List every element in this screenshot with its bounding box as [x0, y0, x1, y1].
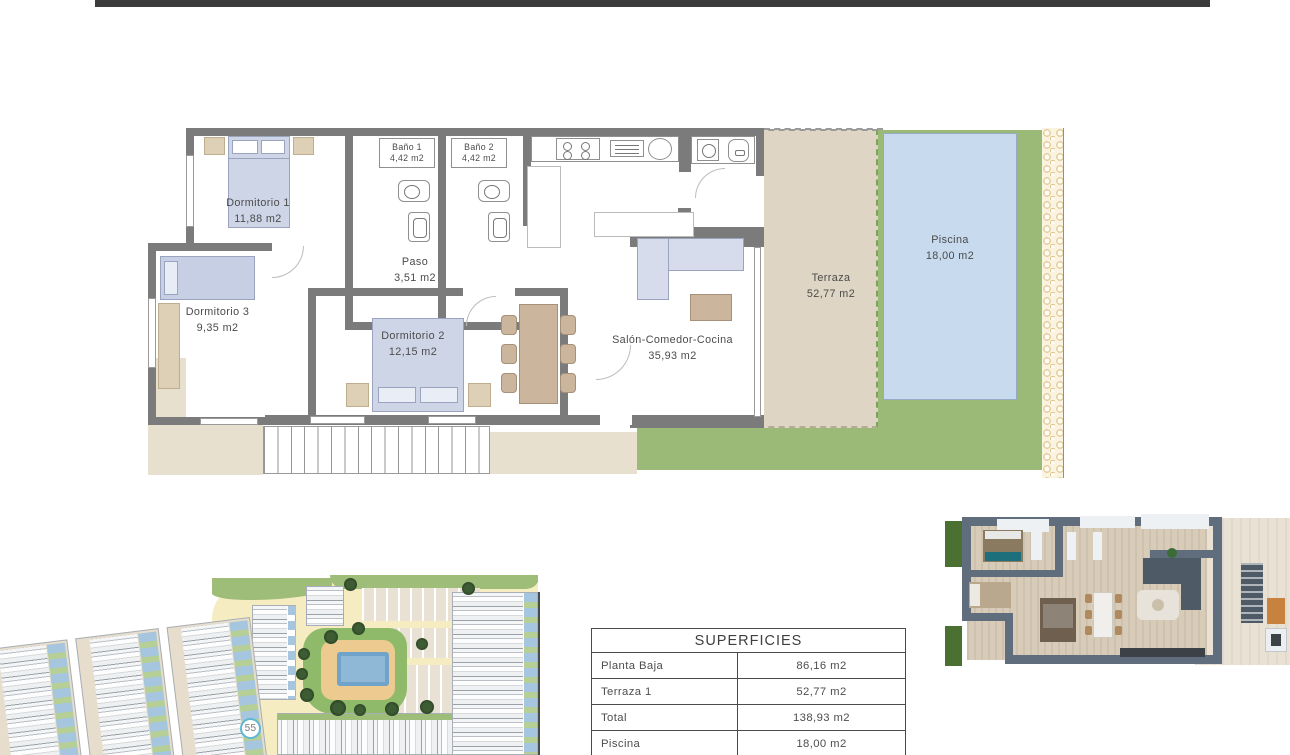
wall [630, 415, 764, 428]
floorplan: Dormitorio 1 11,88 m2 Baño 1 4,42 m2 Bañ… [0, 0, 1290, 500]
room-label-dormitorio1: Dormitorio 1 11,88 m2 [193, 196, 323, 227]
room-name: Baño 2 [464, 142, 494, 153]
tree-icon [420, 700, 434, 714]
wall [345, 128, 353, 226]
room-area: 11,88 m2 [234, 212, 281, 227]
wall [679, 128, 691, 172]
tree-icon [300, 688, 314, 702]
washer-icon [697, 139, 719, 161]
wall [345, 226, 353, 322]
washbasin-icon [408, 212, 430, 242]
wall [438, 128, 446, 226]
superficies-title: SUPERFICIES [592, 629, 905, 653]
nightstand [293, 137, 314, 155]
render-grass [945, 626, 962, 666]
room-label-dormitorio2: Dormitorio 2 12,15 m2 [348, 329, 478, 360]
row-value: 52,77 m2 [738, 679, 905, 704]
room-area: 9,35 m2 [197, 321, 239, 336]
room-label-bano2: Baño 2 4,42 m2 [451, 138, 507, 168]
boiler-icon [728, 139, 749, 162]
island-counter [594, 212, 694, 237]
render-dining-table [1093, 592, 1113, 638]
dining-chair [560, 315, 576, 335]
tree-icon [324, 630, 338, 644]
table-row: Total 138,93 m2 [592, 705, 905, 731]
siteplan-pool [337, 652, 389, 686]
room-area: 4,42 m2 [462, 153, 496, 164]
siteplan-building-row [452, 592, 538, 755]
sofa [637, 238, 669, 300]
tree-icon [354, 704, 366, 716]
pool [883, 133, 1017, 400]
room-name: Dormitorio 3 [186, 305, 250, 320]
kitchen-column [527, 166, 561, 248]
dining-chair [501, 315, 517, 335]
room-label-dormitorio3: Dormitorio 3 9,35 m2 [155, 305, 280, 336]
pebble-border [1042, 128, 1064, 478]
unit-55-marker: 55 [240, 718, 261, 739]
wall [308, 288, 463, 296]
room-name: Dormitorio 1 [226, 196, 290, 211]
render-kitchen-counter [1120, 648, 1205, 657]
section-divider [538, 592, 540, 755]
render-rug [1137, 590, 1179, 620]
room-label-salon: Salón-Comedor-Cocina 35,93 m2 [585, 333, 760, 364]
sink-icon [648, 138, 672, 160]
window [200, 418, 258, 425]
hob-icon [556, 138, 600, 160]
wall [308, 288, 316, 418]
worktop-icon [610, 140, 644, 157]
tree-icon [385, 702, 399, 716]
room-name: Piscina [931, 233, 969, 248]
render-plant [1167, 548, 1177, 558]
render-grass [945, 521, 962, 567]
room-area: 35,93 m2 [648, 349, 696, 364]
nightstand [204, 137, 225, 155]
plan-sheet: Dormitorio 1 11,88 m2 Baño 1 4,42 m2 Bañ… [0, 0, 1290, 755]
render-bed-3 [969, 582, 1011, 608]
dining-chair [501, 344, 517, 364]
dining-table [519, 304, 558, 404]
render-storage-box [1265, 628, 1287, 652]
site-masterplan: 55 [0, 570, 538, 755]
row-value: 138,93 m2 [738, 705, 905, 730]
room-name: Salón-Comedor-Cocina [612, 333, 733, 348]
siteplan-angled-blocks [0, 615, 280, 755]
table-row: Piscina 18,00 m2 [592, 731, 905, 755]
window [428, 416, 476, 424]
row-label: Planta Baja [592, 653, 738, 678]
render-bed-2 [1040, 598, 1076, 642]
room-area: 4,42 m2 [390, 153, 424, 164]
patio-right [490, 432, 637, 474]
room-area: 52,77 m2 [807, 287, 855, 302]
garden-grass [637, 423, 1042, 470]
dining-chair [501, 373, 517, 393]
room-label-paso: Paso 3,51 m2 [365, 255, 465, 286]
dining-chair [560, 373, 576, 393]
room-area: 18,00 m2 [926, 249, 974, 264]
render-sofa [1181, 558, 1201, 610]
table-row: Planta Baja 86,16 m2 [592, 653, 905, 679]
window [310, 416, 365, 424]
wall [186, 128, 764, 136]
bed-dormitorio3 [160, 256, 255, 300]
room-name: Paso [402, 255, 428, 270]
room-name: Dormitorio 2 [381, 329, 445, 344]
siteplan-building [306, 586, 344, 626]
row-label: Terraza 1 [592, 679, 738, 704]
toilet-icon [478, 180, 510, 202]
render-side-table [1267, 598, 1285, 624]
room-name: Terraza [812, 271, 851, 286]
room-area: 3,51 m2 [394, 271, 436, 286]
room-area: 12,15 m2 [389, 345, 437, 360]
tree-icon [330, 700, 346, 716]
row-value: 86,16 m2 [738, 653, 905, 678]
room-label-bano1: Baño 1 4,42 m2 [379, 138, 435, 168]
superficies-table: SUPERFICIES Planta Baja 86,16 m2 Terraza… [591, 628, 906, 755]
wall [148, 243, 272, 251]
nightstand [346, 383, 369, 407]
row-label: Piscina [592, 731, 738, 755]
render-loungers [1241, 563, 1263, 623]
render-3d-topview [945, 510, 1290, 670]
tree-icon [416, 638, 428, 650]
row-label: Total [592, 705, 738, 730]
room-label-piscina: Piscina 18,00 m2 [895, 233, 1005, 264]
tree-icon [344, 578, 357, 591]
nightstand [468, 383, 491, 407]
sliding-door [754, 247, 761, 417]
row-value: 18,00 m2 [738, 731, 905, 755]
washbasin-icon [488, 212, 510, 242]
render-bed-master [983, 530, 1023, 562]
tree-icon [298, 648, 310, 660]
coffee-table [690, 294, 732, 321]
terraza-dashed-top [764, 128, 883, 130]
room-name: Baño 1 [392, 142, 422, 153]
wall [756, 128, 764, 176]
table-row: Terraza 1 52,77 m2 [592, 679, 905, 705]
tree-icon [296, 668, 308, 680]
dining-chair [560, 344, 576, 364]
unit-55-label: 55 [245, 723, 257, 734]
exterior-stairs [263, 426, 490, 474]
tree-icon [462, 582, 475, 595]
room-label-terraza: Terraza 52,77 m2 [780, 271, 882, 302]
siteplan-green-edge [330, 575, 538, 589]
door-gap [600, 415, 632, 425]
toilet-icon [398, 180, 430, 202]
tree-icon [352, 622, 365, 635]
